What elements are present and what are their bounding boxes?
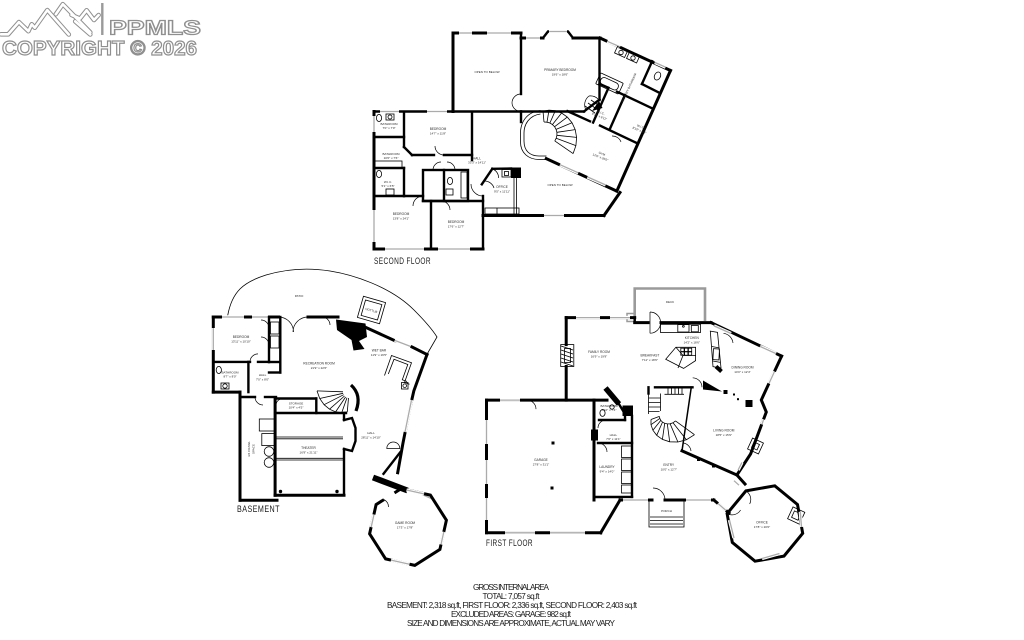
svg-text:13'11" x 10'10": 13'11" x 10'10" (231, 340, 251, 344)
svg-text:17'6" x 12'7": 17'6" x 12'7" (448, 225, 464, 229)
svg-text:OPEN TO BELOW: OPEN TO BELOW (474, 70, 499, 74)
svg-text:ENTRY: ENTRY (663, 463, 675, 467)
svg-text:BASEMENT: BASEMENT (237, 504, 280, 515)
svg-text:OFFICE: OFFICE (496, 185, 508, 189)
svg-text:SECOND FLOOR: SECOND FLOOR (374, 256, 431, 267)
svg-text:OFFICE: OFFICE (756, 521, 768, 525)
svg-text:8'7" x 8'0": 8'7" x 8'0" (223, 375, 236, 379)
svg-text:GROSS INTERNAL AREA: GROSS INTERNAL AREA (473, 583, 550, 592)
svg-text:PATIO: PATIO (295, 294, 304, 298)
svg-text:16'9" x 19'9": 16'9" x 19'9" (591, 355, 607, 359)
svg-text:7'0" x 7'0": 7'0" x 7'0" (382, 126, 395, 130)
svg-text:GAME ROOM: GAME ROOM (395, 521, 416, 525)
svg-text:FIRST FLOOR: FIRST FLOOR (486, 538, 533, 549)
svg-text:HALL: HALL (259, 373, 267, 377)
svg-text:OPEN TO BELOW: OPEN TO BELOW (547, 183, 572, 187)
svg-text:19'6" x 18'6": 19'6" x 18'6" (552, 73, 568, 77)
svg-text:5'1" x 6'5": 5'1" x 6'5" (381, 184, 394, 188)
svg-text:COPYRIGHT © 2026: COPYRIGHT © 2026 (2, 37, 197, 60)
svg-text:BEDROOM: BEDROOM (233, 335, 250, 339)
svg-text:3/4 CRAWL: 3/4 CRAWL (247, 441, 251, 457)
svg-text:GARAGE: GARAGE (534, 458, 548, 462)
svg-text:21'9" x 22'6": 21'9" x 22'6" (311, 366, 327, 370)
svg-text:KITCHEN: KITCHEN (685, 336, 700, 340)
svg-text:11'9" x 16'5": 11'9" x 16'5" (371, 353, 387, 357)
svg-text:DINING ROOM: DINING ROOM (732, 366, 754, 370)
svg-text:33'3" x 14'11": 33'3" x 14'11" (468, 161, 486, 165)
svg-text:28'11" x 14'10": 28'11" x 14'10" (361, 436, 381, 440)
svg-text:7'0" x 11'1": 7'0" x 11'1" (606, 437, 621, 441)
svg-text:SIZE AND DIMENSIONS ARE APPROX: SIZE AND DIMENSIONS ARE APPROXIMATE, ACT… (407, 619, 616, 628)
svg-text:16'9" x 21'11": 16'9" x 21'11" (300, 451, 318, 455)
svg-text:BREAKFAST: BREAKFAST (641, 354, 660, 358)
svg-text:7'11" x 18'6": 7'11" x 18'6" (642, 358, 658, 362)
svg-text:BEDROOM: BEDROOM (448, 220, 465, 224)
svg-text:14'2" x 18'6": 14'2" x 18'6" (684, 341, 700, 345)
svg-text:14'7" x 11'8": 14'7" x 11'8" (430, 132, 446, 136)
svg-text:10'4" x 4'5": 10'4" x 4'5" (289, 406, 304, 410)
svg-text:10'0" x 7'6": 10'0" x 7'6" (384, 156, 399, 160)
svg-text:TOTAL: 7,057 sq.ft: TOTAL: 7,057 sq.ft (483, 592, 541, 601)
svg-text:LAUNDRY: LAUNDRY (599, 465, 615, 469)
svg-text:DECK: DECK (666, 300, 674, 304)
svg-text:RECREATION ROOM: RECREATION ROOM (303, 362, 335, 366)
svg-text:10'0" x 12'7": 10'0" x 12'7" (661, 468, 677, 472)
svg-text:7'0" x 8'0": 7'0" x 8'0" (256, 378, 269, 382)
svg-text:HALL: HALL (367, 431, 375, 435)
svg-text:9'4" x 14'0": 9'4" x 14'0" (600, 470, 615, 474)
svg-text:18'5" x 15'9": 18'5" x 15'9" (716, 433, 732, 437)
svg-text:BASEMENT: 2,318 sq.ft, FIRST F: BASEMENT: 2,318 sq.ft, FIRST FLOOR: 2,33… (387, 601, 638, 610)
svg-text:14'0" x 12'4": 14'0" x 12'4" (734, 370, 750, 374)
svg-text:PRIMARY BEDROOM: PRIMARY BEDROOM (544, 68, 576, 72)
svg-text:17'8" x 20'0": 17'8" x 20'0" (754, 525, 770, 529)
svg-text:WET BAR: WET BAR (372, 349, 387, 353)
svg-text:FAMILY ROOM: FAMILY ROOM (588, 350, 610, 354)
svg-text:BEDROOM: BEDROOM (393, 212, 410, 216)
svg-text:THEATER: THEATER (301, 446, 316, 450)
svg-text:EXCLUDED AREAS: GARAGE: 982 sq: EXCLUDED AREAS: GARAGE: 982 sq.ft (451, 610, 572, 619)
svg-text:27'8" x 31'1": 27'8" x 31'1" (533, 463, 549, 467)
svg-text:9'5" x 11'11": 9'5" x 11'11" (494, 190, 510, 194)
svg-text:17'3" x 17'8": 17'3" x 17'8" (397, 526, 413, 530)
svg-text:SPACE: SPACE (252, 444, 256, 454)
svg-text:LIVING ROOM: LIVING ROOM (713, 429, 735, 433)
svg-text:13'8" x 24'1": 13'8" x 24'1" (393, 217, 409, 221)
svg-text:PORCH: PORCH (661, 509, 672, 513)
svg-text:BEDROOM: BEDROOM (430, 127, 447, 131)
